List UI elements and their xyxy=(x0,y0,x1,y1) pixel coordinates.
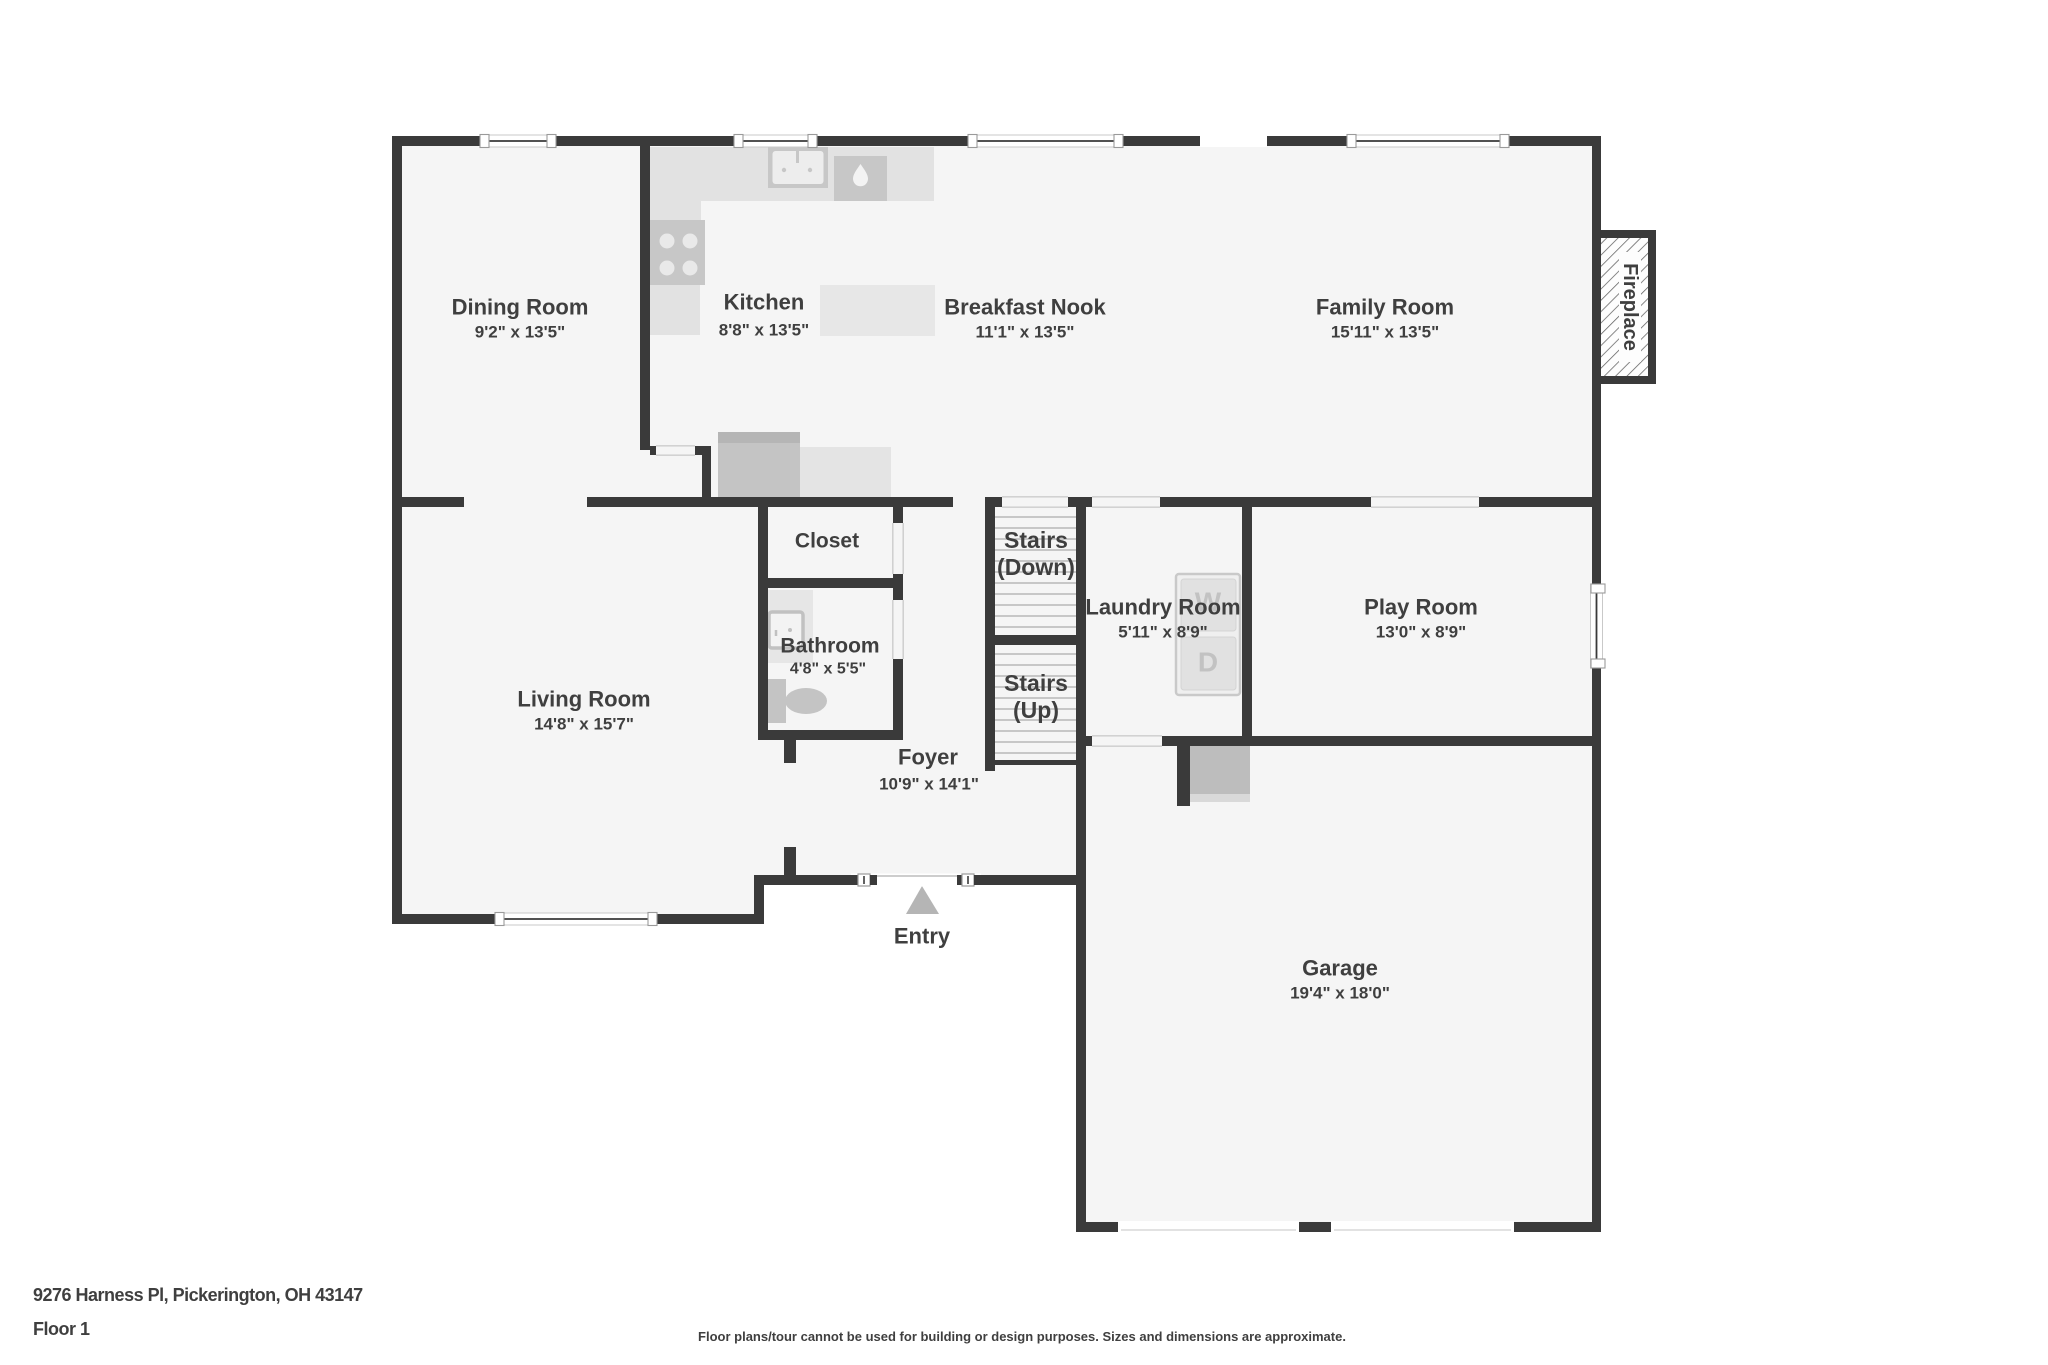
svg-text:Closet: Closet xyxy=(795,530,859,553)
svg-text:Family Room: Family Room xyxy=(1316,295,1454,320)
svg-text:11'1" x 13'5": 11'1" x 13'5" xyxy=(976,323,1075,342)
svg-text:5'11" x 8'9": 5'11" x 8'9" xyxy=(1118,623,1207,642)
svg-text:15'11" x 13'5": 15'11" x 13'5" xyxy=(1331,323,1439,342)
svg-text:Floor 1: Floor 1 xyxy=(33,1319,90,1339)
svg-text:Stairs: Stairs xyxy=(1004,527,1068,553)
svg-text:4'8" x 5'5": 4'8" x 5'5" xyxy=(790,661,866,678)
svg-text:Living Room: Living Room xyxy=(517,687,650,712)
svg-text:Bathroom: Bathroom xyxy=(780,635,879,658)
svg-text:9'2" x 13'5": 9'2" x 13'5" xyxy=(475,323,565,342)
svg-text:Play Room: Play Room xyxy=(1364,595,1478,620)
svg-text:D: D xyxy=(1198,647,1218,678)
svg-text:Entry: Entry xyxy=(894,924,951,949)
svg-text:(Down): (Down) xyxy=(997,554,1075,580)
svg-text:19'4" x 18'0": 19'4" x 18'0" xyxy=(1290,984,1390,1003)
svg-text:Fireplace: Fireplace xyxy=(1619,263,1641,351)
svg-text:9276 Harness Pl, Pickerington,: 9276 Harness Pl, Pickerington, OH 43147 xyxy=(33,1285,363,1305)
svg-text:10'9" x 14'1": 10'9" x 14'1" xyxy=(879,775,979,794)
svg-text:Stairs: Stairs xyxy=(1004,670,1068,696)
svg-text:8'8" x 13'5": 8'8" x 13'5" xyxy=(719,321,809,340)
svg-text:(Up): (Up) xyxy=(1013,697,1059,723)
svg-text:Floor plans/tour cannot be use: Floor plans/tour cannot be used for buil… xyxy=(698,1329,1346,1344)
svg-text:Laundry Room: Laundry Room xyxy=(1085,595,1240,620)
svg-text:Breakfast Nook: Breakfast Nook xyxy=(944,295,1106,320)
svg-text:13'0" x 8'9": 13'0" x 8'9" xyxy=(1376,623,1466,642)
svg-text:Dining Room: Dining Room xyxy=(452,295,589,320)
svg-text:14'8" x 15'7": 14'8" x 15'7" xyxy=(534,715,634,734)
svg-text:Garage: Garage xyxy=(1302,956,1378,981)
svg-text:Kitchen: Kitchen xyxy=(724,290,805,315)
svg-text:Foyer: Foyer xyxy=(898,745,958,770)
